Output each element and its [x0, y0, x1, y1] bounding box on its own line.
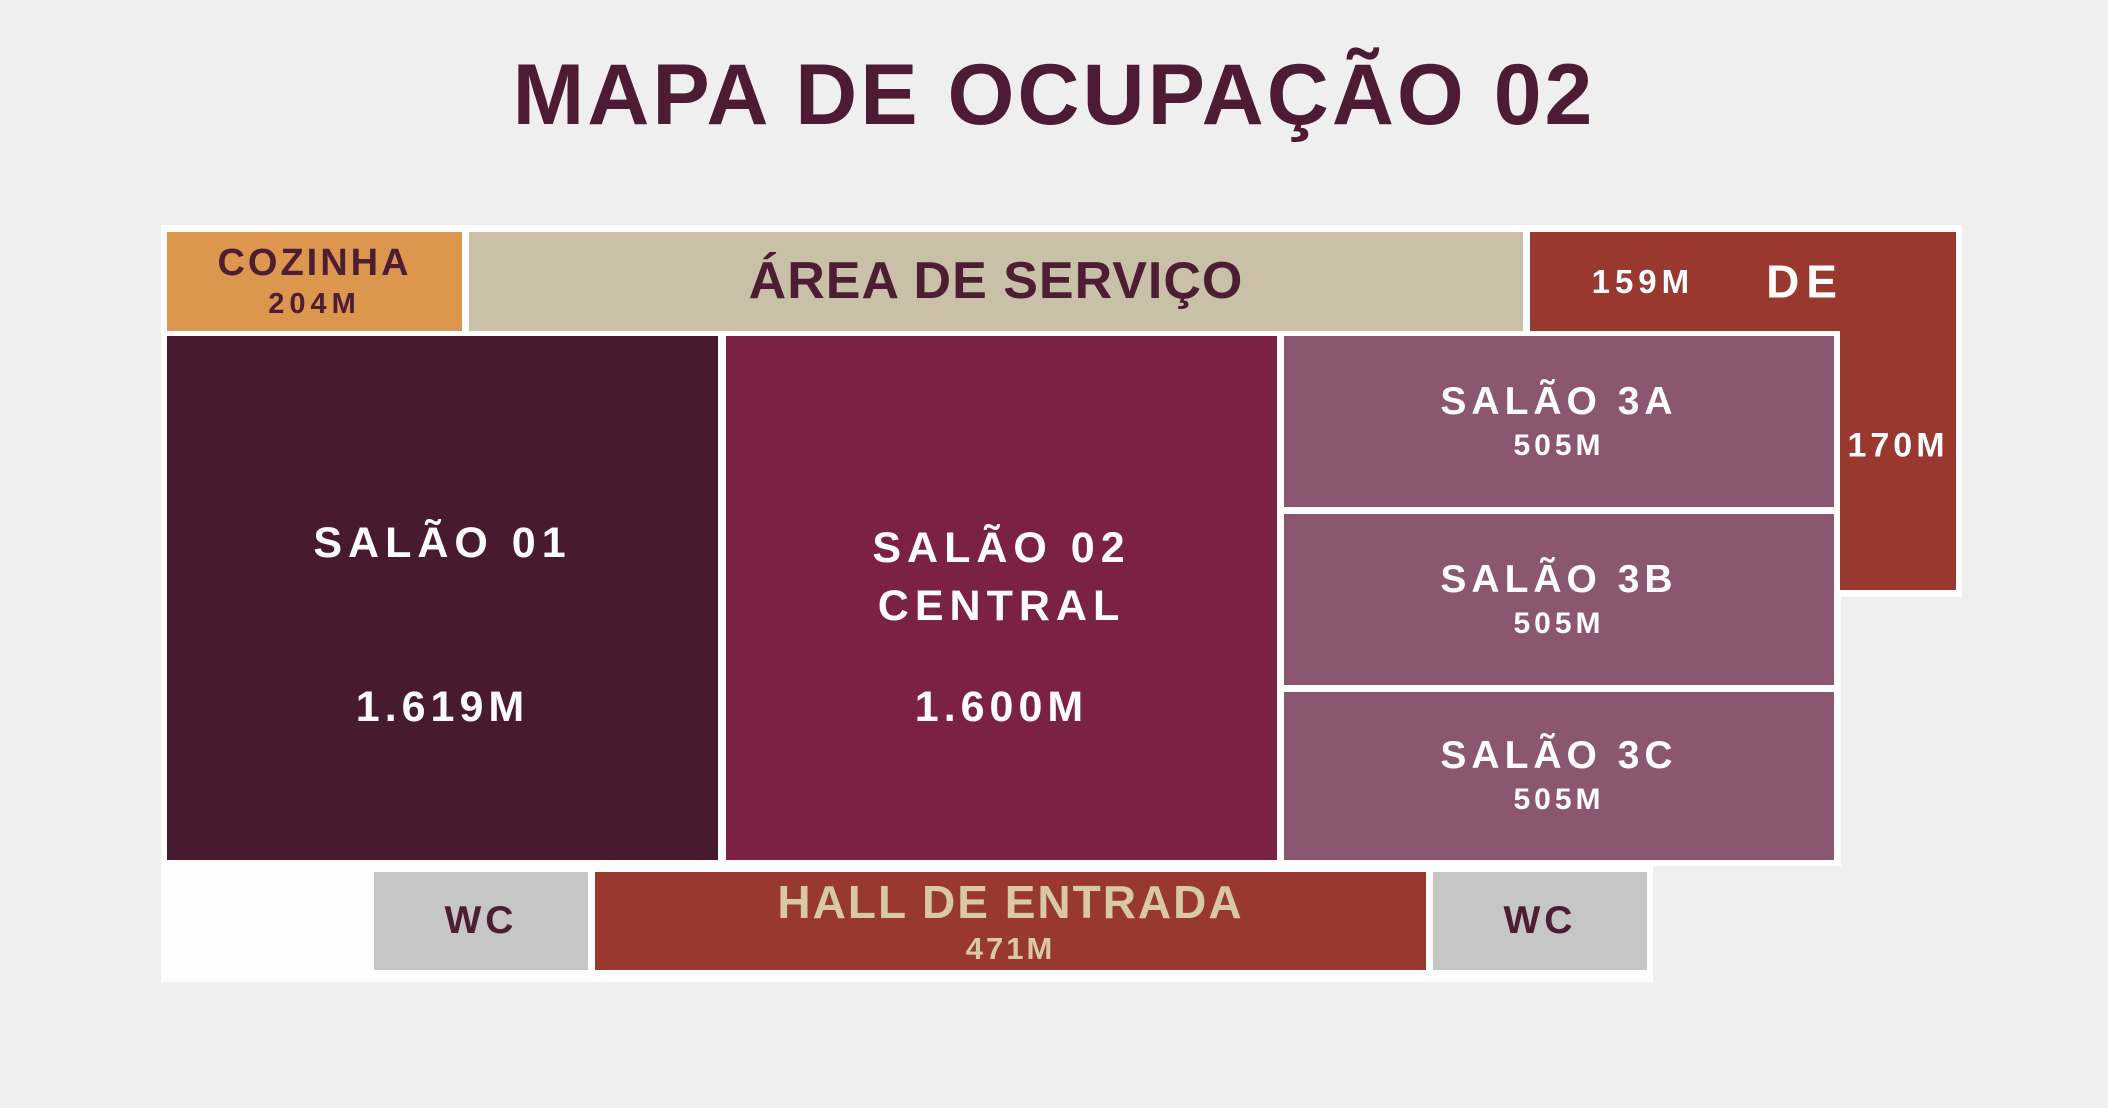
- room-name: SALÃO 01: [313, 519, 571, 568]
- room-deck-side: 170M: [1840, 232, 1956, 590]
- room-wc-right: WC: [1433, 872, 1647, 970]
- room-area: 1.600M: [915, 683, 1088, 732]
- room-wc-left: WC: [374, 872, 588, 970]
- page-title: MAPA DE OCUPAÇÃO 02: [0, 52, 2108, 138]
- room-area: 204M: [268, 288, 361, 321]
- room-name: SALÃO 3B: [1440, 558, 1677, 603]
- room-name: WC: [1504, 899, 1577, 944]
- room-salao-01: SALÃO 01 1.619M: [167, 336, 718, 860]
- room-name: ÁREA DE SERVIÇO: [749, 252, 1244, 312]
- room-cozinha: COZINHA 204M: [167, 232, 462, 331]
- room-name: HALL DE ENTRADA: [777, 876, 1243, 929]
- room-name: WC: [445, 899, 518, 944]
- room-hall-de-entrada: HALL DE ENTRADA 471M: [595, 872, 1426, 970]
- room-area: 505M: [1513, 607, 1604, 642]
- room-area: 505M: [1513, 429, 1604, 464]
- room-area: 1.619M: [356, 683, 529, 732]
- room-area: 159M: [1592, 263, 1695, 301]
- room-area: 170M: [1847, 426, 1948, 465]
- room-salao-02-central: SALÃO 02CENTRAL 1.600M: [726, 336, 1277, 860]
- room-salao-3b: SALÃO 3B 505M: [1284, 514, 1834, 685]
- room-name: COZINHA: [217, 242, 411, 286]
- room-name: SALÃO 02CENTRAL: [872, 519, 1130, 635]
- room-area-de-servico: ÁREA DE SERVIÇO: [469, 232, 1523, 331]
- room-name: SALÃO 3C: [1440, 734, 1677, 779]
- room-salao-3a: SALÃO 3A 505M: [1284, 336, 1834, 507]
- room-area: 471M: [966, 931, 1056, 967]
- room-salao-3c: SALÃO 3C 505M: [1284, 692, 1834, 860]
- occupation-map: MAPA DE OCUPAÇÃO 02 COZINHA 204M ÁREA DE…: [0, 0, 2108, 1108]
- room-area: 505M: [1513, 783, 1604, 818]
- room-name: SALÃO 3A: [1440, 380, 1677, 425]
